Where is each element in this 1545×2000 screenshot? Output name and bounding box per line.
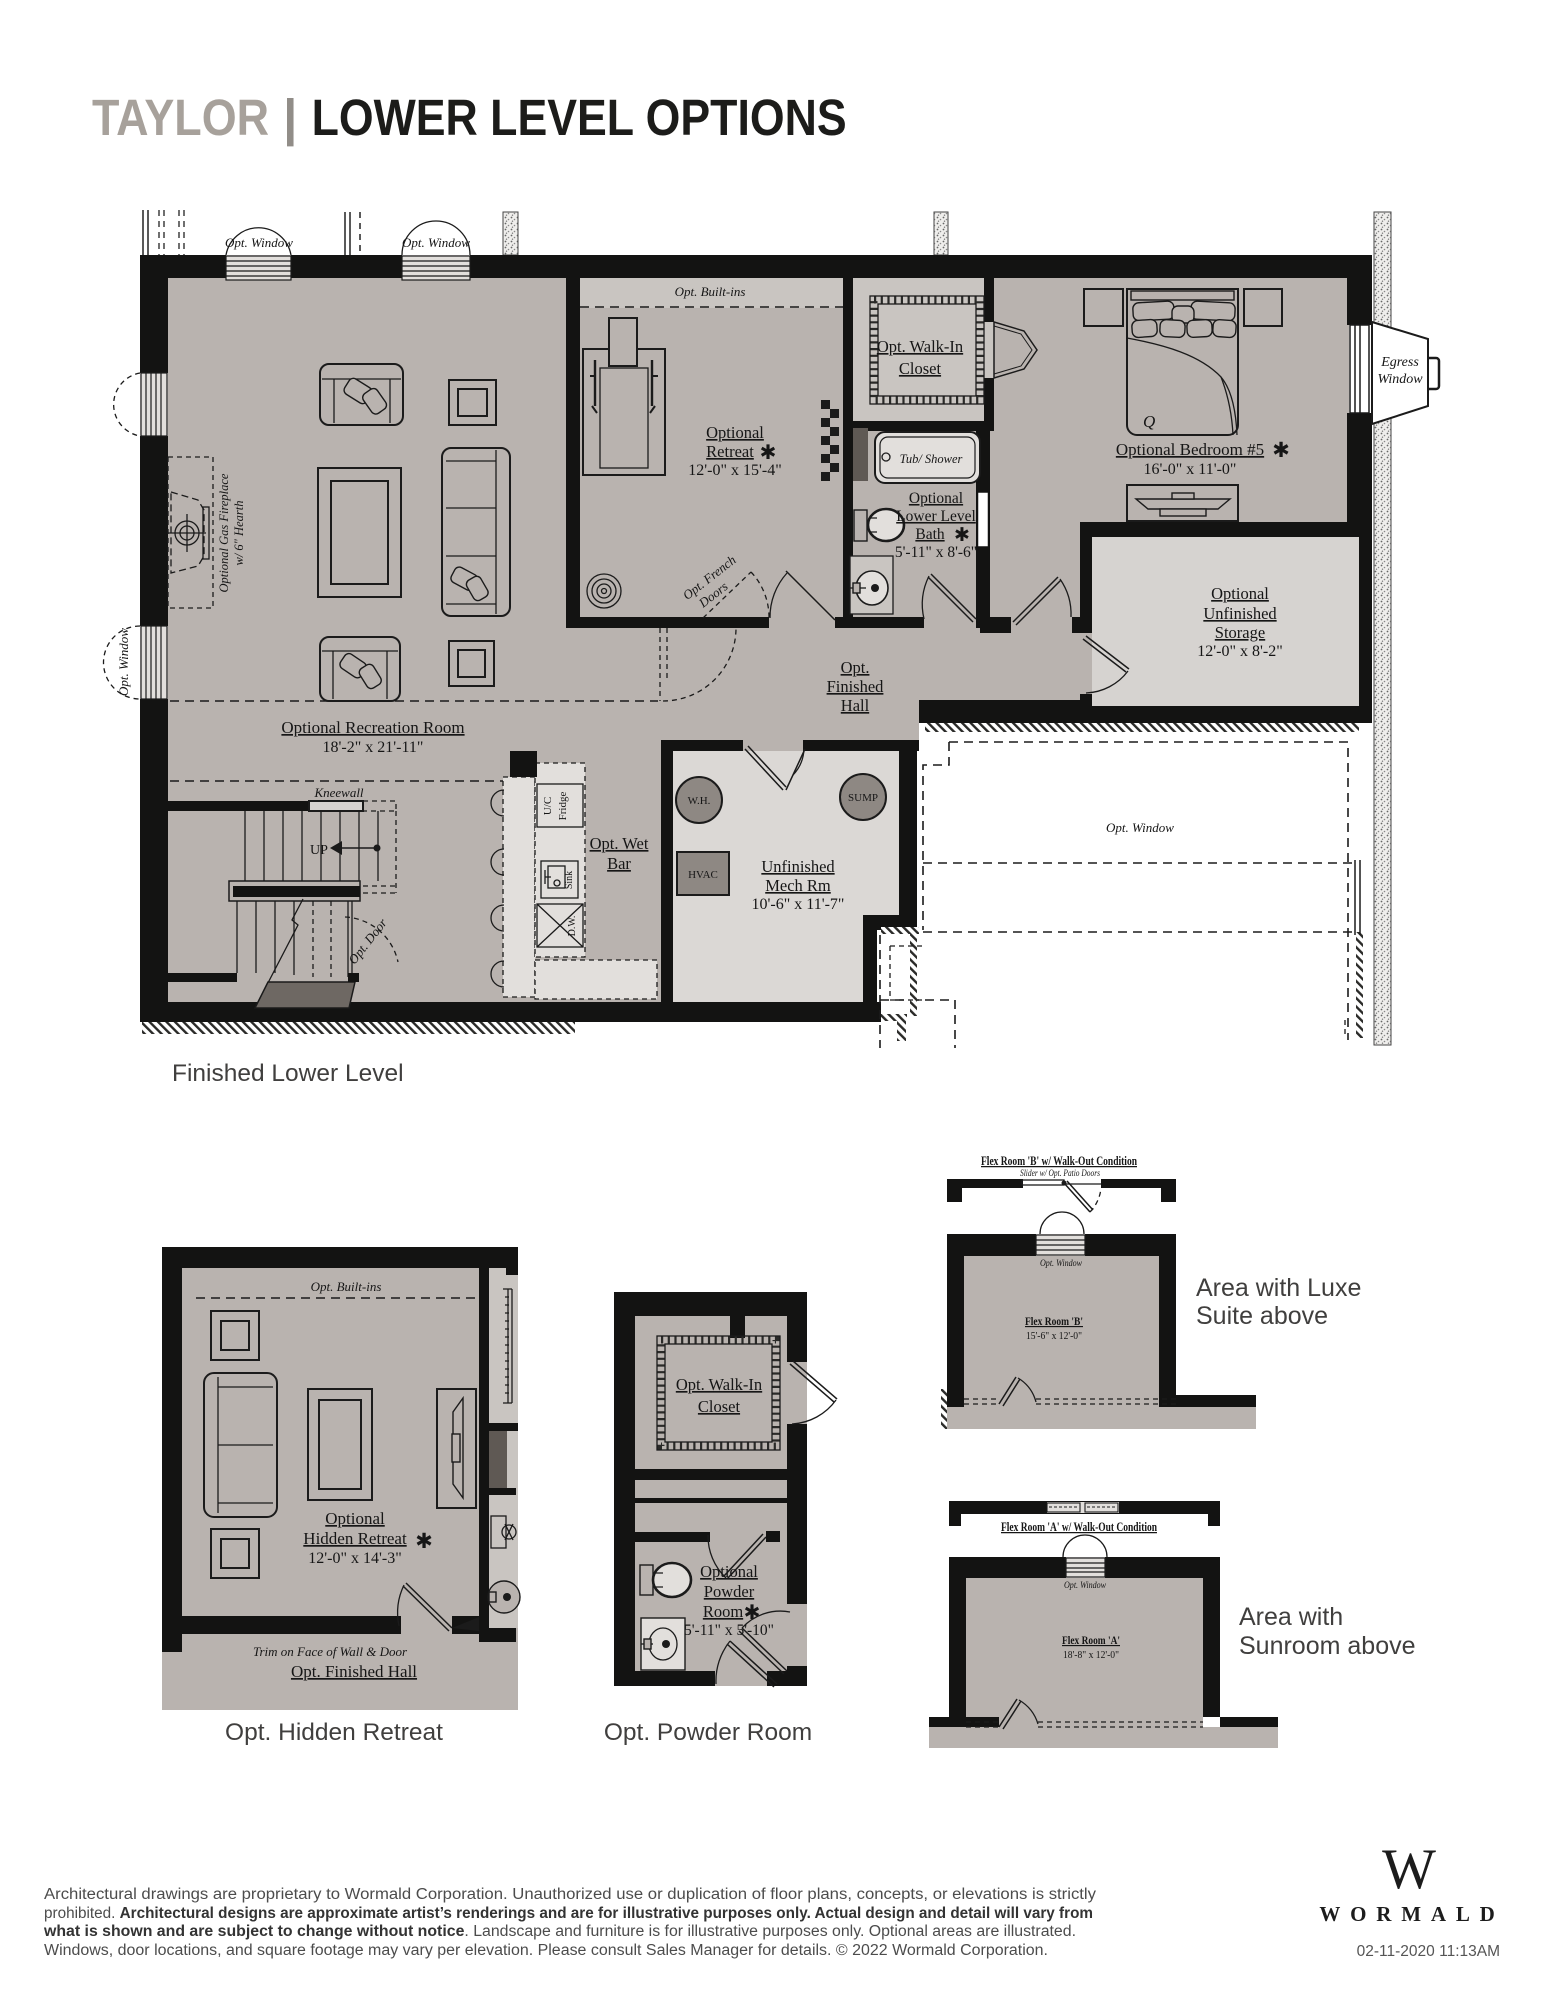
svg-text:Bath: Bath — [915, 526, 945, 543]
svg-text:Opt. Hidden Retreat: Opt. Hidden Retreat — [225, 1719, 443, 1746]
svg-text:✱: ✱ — [760, 442, 777, 464]
svg-text:12'-0" x 14'-3": 12'-0" x 14'-3" — [308, 1550, 401, 1567]
svg-text:Mech Rm: Mech Rm — [765, 876, 831, 895]
svg-text:15'-6" x 12'-0": 15'-6" x 12'-0" — [1026, 1330, 1082, 1342]
svg-text:Kneewall: Kneewall — [313, 785, 363, 800]
svg-text:Opt. Walk-In: Opt. Walk-In — [676, 1375, 762, 1394]
svg-text:5'-11" x 5'-10": 5'-11" x 5'-10" — [684, 1622, 774, 1639]
svg-text:5'-11" x 8'-6": 5'-11" x 8'-6" — [895, 544, 977, 561]
svg-text:Opt. Walk-In: Opt. Walk-In — [877, 337, 963, 356]
svg-text:Suite above: Suite above — [1196, 1302, 1328, 1330]
svg-text:Hidden Retreat: Hidden Retreat — [303, 1529, 407, 1548]
svg-text:Closet: Closet — [698, 1397, 741, 1416]
svg-text:Optional: Optional — [1211, 584, 1269, 603]
svg-text:Egress: Egress — [1380, 355, 1419, 370]
svg-text:Opt. Window: Opt. Window — [1106, 820, 1174, 835]
svg-text:Flex Room 'A': Flex Room 'A' — [1062, 1635, 1120, 1647]
svg-text:12'-0" x 8'-2": 12'-0" x 8'-2" — [1197, 643, 1282, 660]
svg-text:Area with: Area with — [1239, 1603, 1343, 1631]
svg-text:Window: Window — [1377, 372, 1423, 387]
svg-text:Flex Room 'A' w/ Walk-Out Cond: Flex Room 'A' w/ Walk-Out Condition — [1001, 1520, 1157, 1534]
svg-text:Windows, door locations, and s: Windows, door locations, and square foot… — [44, 1942, 1048, 1959]
svg-text:18'-2" x 21'-11": 18'-2" x 21'-11" — [323, 739, 424, 756]
svg-text:TAYLOR | LOWER LEVEL OPTIONS: TAYLOR | LOWER LEVEL OPTIONS — [92, 89, 847, 147]
svg-text:Optional: Optional — [909, 490, 963, 507]
svg-text:Q: Q — [1143, 412, 1155, 431]
svg-text:Fridge: Fridge — [557, 792, 569, 821]
svg-text:Optional Bedroom #5: Optional Bedroom #5 — [1116, 440, 1264, 459]
svg-text:✱: ✱ — [744, 1602, 761, 1624]
svg-text:Optional: Optional — [700, 1562, 758, 1581]
svg-text:Bar: Bar — [607, 854, 631, 873]
svg-text:Optional Gas Fireplace: Optional Gas Fireplace — [217, 473, 231, 592]
svg-text:HVAC: HVAC — [688, 869, 718, 881]
svg-text:SUMP: SUMP — [848, 792, 878, 804]
svg-text:Opt. Window: Opt. Window — [1040, 1259, 1083, 1269]
svg-text:Optional: Optional — [325, 1509, 385, 1528]
svg-text:Unfinished: Unfinished — [761, 857, 835, 876]
svg-text:U/C: U/C — [542, 797, 554, 815]
svg-text:Optional: Optional — [706, 423, 764, 442]
svg-text:Flex Room 'B' w/ Walk-Out Cond: Flex Room 'B' w/ Walk-Out Condition — [981, 1154, 1137, 1168]
svg-text:W.H.: W.H. — [688, 795, 711, 807]
svg-text:Tub/ Shower: Tub/ Shower — [900, 452, 963, 466]
svg-text:WORMALD: WORMALD — [1319, 1902, 1504, 1926]
svg-text:Powder: Powder — [704, 1582, 755, 1601]
svg-text:Room: Room — [703, 1602, 744, 1621]
svg-text:Area with Luxe: Area with Luxe — [1196, 1274, 1361, 1302]
svg-text:10'-6" x 11'-7": 10'-6" x 11'-7" — [752, 896, 845, 913]
svg-text:W: W — [1382, 1838, 1436, 1901]
svg-text:what is shown and are subject: what is shown and are subject to change … — [43, 1923, 1076, 1940]
svg-text:w/ 6" Hearth: w/ 6" Hearth — [232, 501, 246, 566]
svg-text:Opt.: Opt. — [841, 658, 870, 677]
svg-text:Opt. Powder Room: Opt. Powder Room — [604, 1719, 812, 1746]
svg-text:Opt. Window: Opt. Window — [116, 628, 131, 696]
svg-text:Sink: Sink — [564, 871, 575, 889]
svg-text:Storage: Storage — [1215, 623, 1265, 642]
svg-text:Architectural drawings are pro: Architectural drawings are proprietary t… — [44, 1886, 1096, 1903]
svg-text:Opt. Finished Hall: Opt. Finished Hall — [291, 1662, 417, 1681]
svg-text:Opt. Built-ins: Opt. Built-ins — [311, 1279, 382, 1294]
svg-text:Opt. Window: Opt. Window — [1064, 1581, 1107, 1591]
svg-text:16'-0" x 11'-0": 16'-0" x 11'-0" — [1144, 461, 1237, 478]
svg-text:Optional Recreation Room: Optional Recreation Room — [281, 718, 464, 737]
svg-text:Finished: Finished — [827, 677, 885, 696]
svg-text:02-11-2020 11:13AM: 02-11-2020 11:13AM — [1357, 1943, 1500, 1960]
svg-text:Opt. Window: Opt. Window — [225, 235, 293, 250]
svg-text:D.W.: D.W. — [567, 916, 578, 937]
svg-text:Sunroom above: Sunroom above — [1239, 1632, 1416, 1660]
svg-text:Lower Level: Lower Level — [896, 508, 976, 525]
svg-text:Slider w/ Opt. Patio Doors: Slider w/ Opt. Patio Doors — [1020, 1169, 1100, 1179]
svg-text:Unfinished: Unfinished — [1203, 604, 1277, 623]
svg-text:Opt. Window: Opt. Window — [402, 235, 470, 250]
svg-text:Closet: Closet — [899, 359, 942, 378]
svg-text:12'-0" x 15'-4": 12'-0" x 15'-4" — [688, 462, 781, 479]
svg-text:✱: ✱ — [1272, 438, 1290, 462]
svg-text:✱: ✱ — [954, 525, 970, 546]
svg-text:Finished Lower Level: Finished Lower Level — [172, 1060, 404, 1087]
svg-text:Hall: Hall — [841, 696, 870, 715]
svg-text:Retreat: Retreat — [706, 442, 754, 461]
svg-text:Opt. Built-ins: Opt. Built-ins — [675, 284, 746, 299]
svg-text:UP: UP — [310, 843, 328, 858]
svg-text:18'-8" x 12'-0": 18'-8" x 12'-0" — [1063, 1649, 1119, 1661]
svg-text:✱: ✱ — [415, 1529, 433, 1553]
svg-text:Trim on Face of Wall & Door: Trim on Face of Wall & Door — [253, 1644, 408, 1659]
svg-text:prohibited. Architectural desi: prohibited. Architectural designs are ap… — [44, 1905, 1093, 1922]
svg-text:Flex Room 'B': Flex Room 'B' — [1025, 1316, 1083, 1328]
svg-text:Opt. Wet: Opt. Wet — [590, 834, 649, 853]
